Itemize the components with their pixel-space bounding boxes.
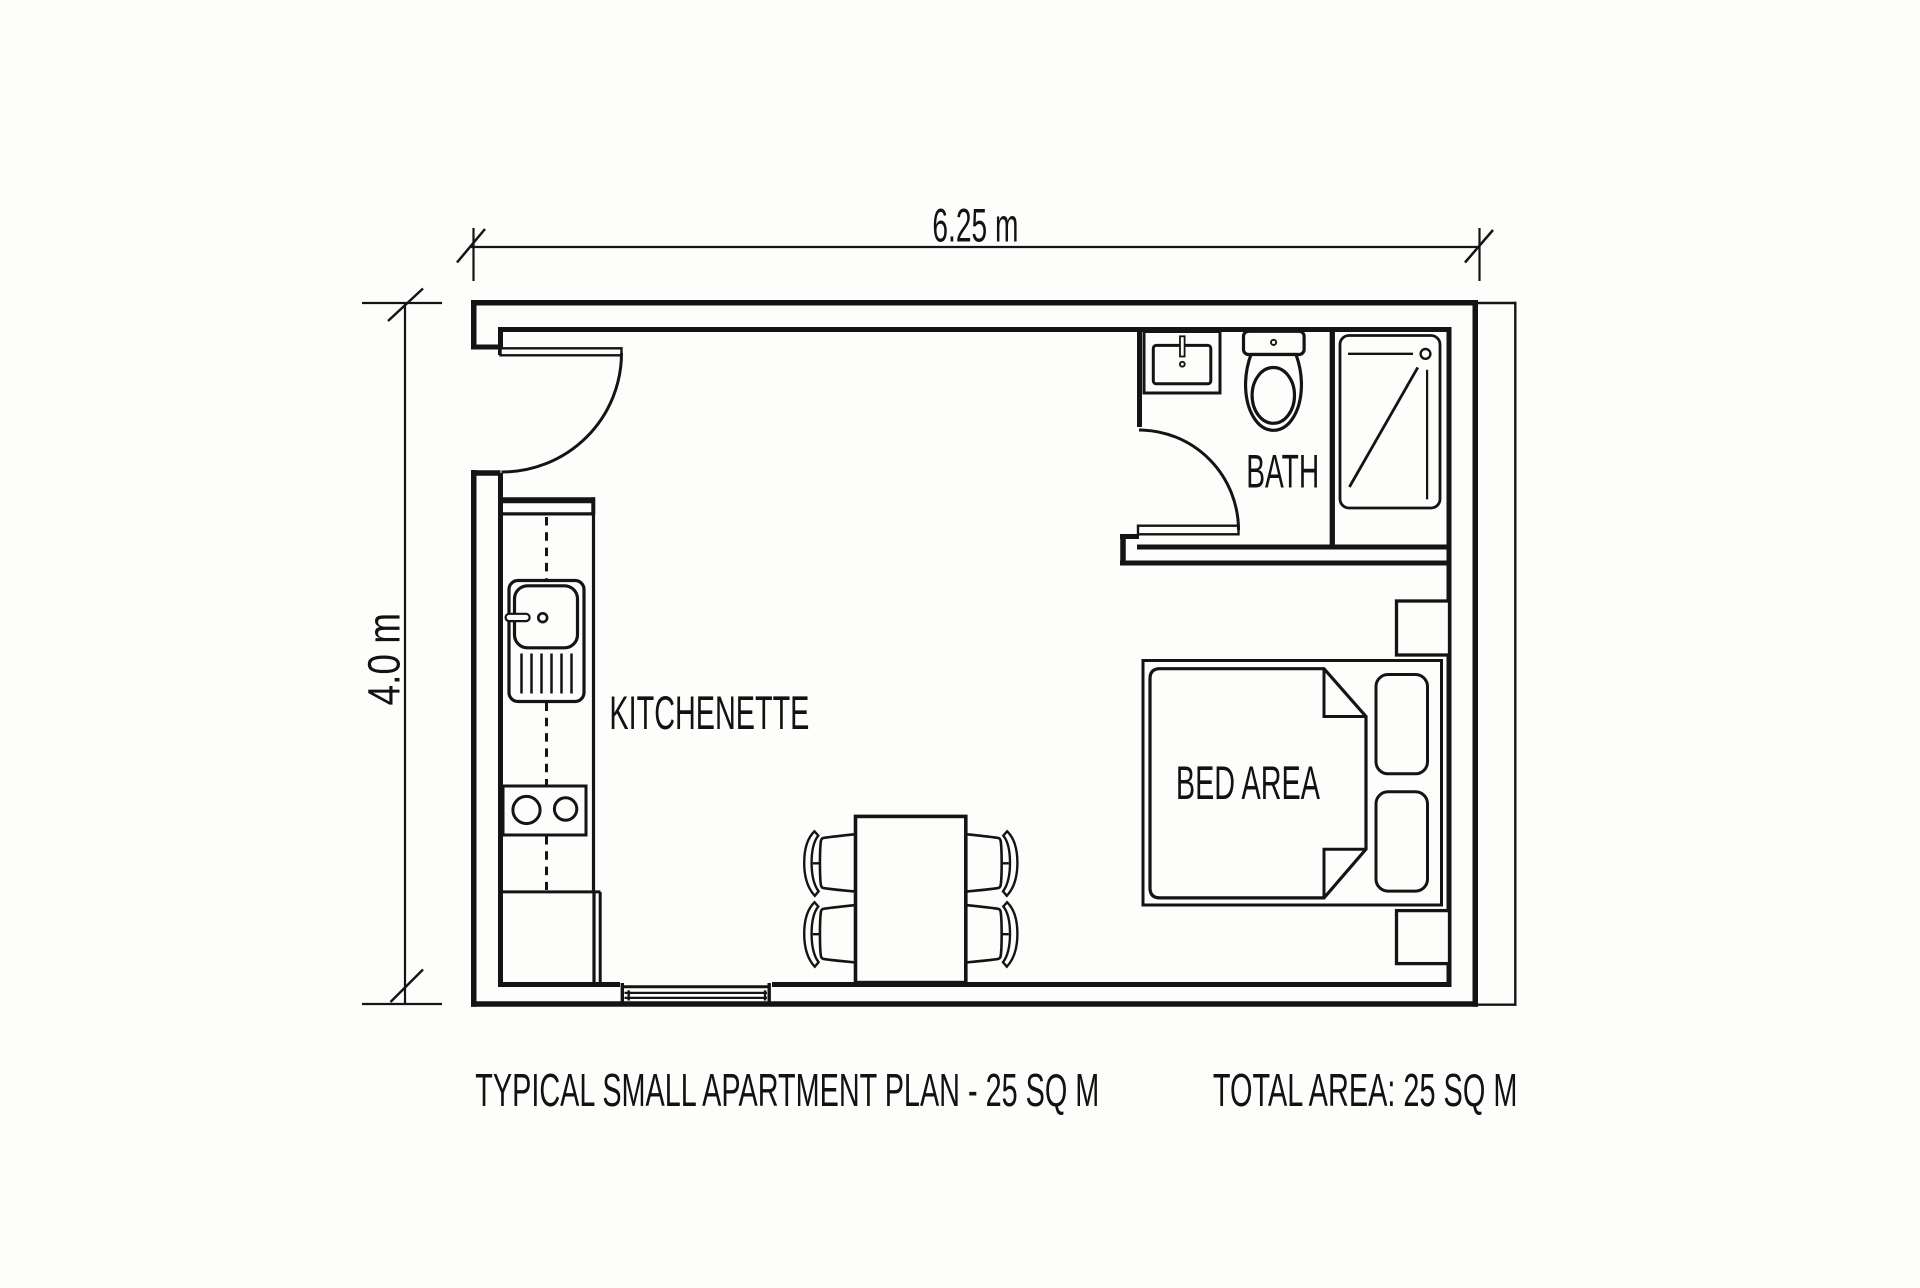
svg-text:6.25 m: 6.25 m <box>932 199 1018 252</box>
svg-text:TOTAL AREA: 25 SQ M: TOTAL AREA: 25 SQ M <box>1213 1064 1518 1116</box>
svg-text:TYPICAL SMALL APARTMENT PLAN -: TYPICAL SMALL APARTMENT PLAN - 25 SQ M <box>475 1064 1099 1116</box>
svg-text:BED AREA: BED AREA <box>1176 756 1320 809</box>
svg-text:4.0 m: 4.0 m <box>359 613 410 706</box>
svg-text:BATH: BATH <box>1246 445 1319 498</box>
svg-text:KITCHENETTE: KITCHENETTE <box>609 686 809 739</box>
